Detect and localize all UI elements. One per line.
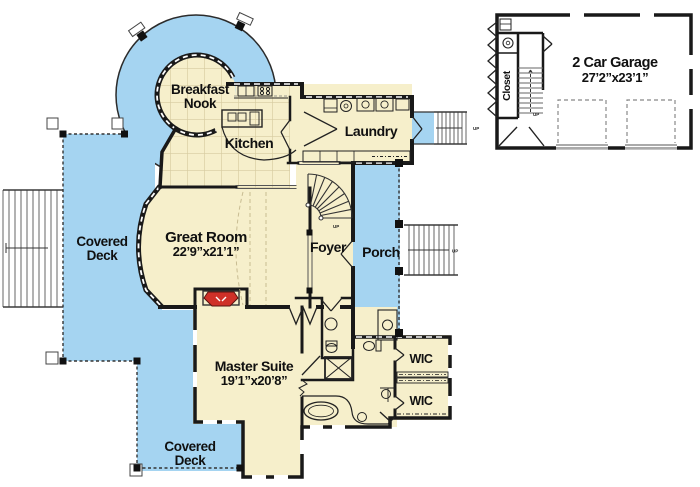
porch-stairs-right [404,225,458,275]
covered-deck-bottom-label: Covered [164,439,215,454]
covered-deck-left-label: Covered [76,234,127,249]
garage-zigzag-edge [488,22,497,117]
garage-label: 2 Car Garage [572,55,658,71]
laundry-label: Laundry [345,123,398,139]
kitchen-label: Kitchen [225,135,274,151]
master-suite-label: Master Suite [215,358,294,374]
up-label-porch: UP [452,249,458,254]
closet-label: Closet [501,70,513,101]
covered-deck-bottom-label2: Deck [175,453,207,468]
foyer-floor [296,160,353,312]
up-label-landing: UP [473,126,479,131]
breakfast-nook-label: Breakfast [171,82,230,97]
up-label-garage: UP [533,112,539,117]
floor-plan-page: Breakfast Nook Kitchen Laundry Great Roo… [0,0,700,487]
wic-upper-label: WIC [409,352,432,366]
porch-label: Porch [362,244,400,260]
wic-lower-label: WIC [409,394,432,408]
floor-plan-drawing: Breakfast Nook Kitchen Laundry Great Roo… [0,0,700,487]
foyer-label: Foyer [310,239,347,255]
deck-stairs-left [3,190,63,307]
garage-dims: 27’2”x23’1” [582,70,648,85]
covered-deck-left-label2: Deck [87,248,119,263]
great-room-dims: 22’9”x21’1” [173,244,239,259]
master-ext-floor [243,420,303,477]
master-suite-dims: 19’1”x20’8” [221,373,287,388]
breakfast-nook-label2: Nook [184,96,217,111]
stair-landing [412,112,434,144]
up-label-foyer: UP [333,224,339,229]
